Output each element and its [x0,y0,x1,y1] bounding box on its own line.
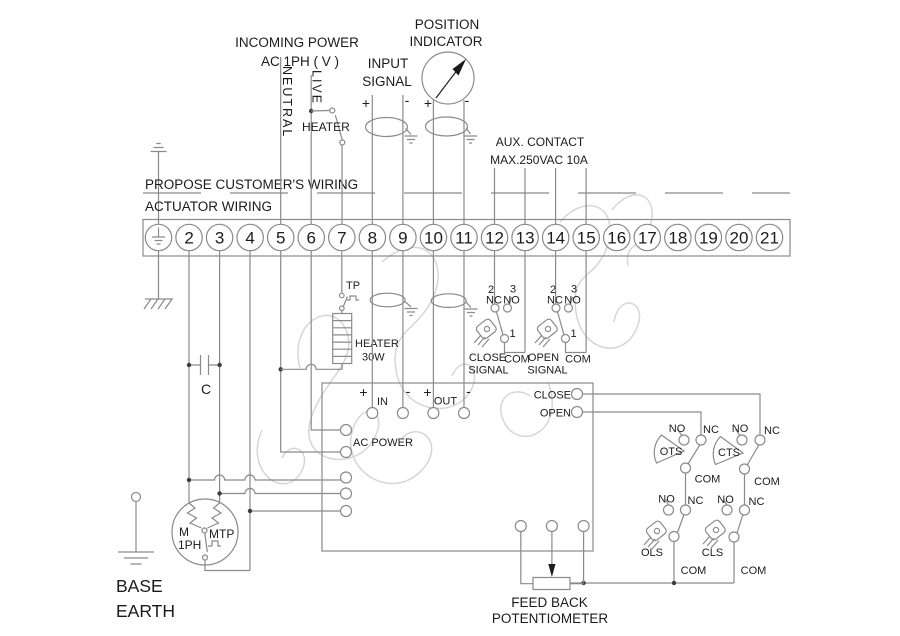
feedback-potentiometer [521,532,584,590]
label-aux-contact: AUX. CONTACT [496,135,585,149]
diagram-canvas: PROPOSE CUSTOMER'S WIRING ACTUATOR WIRIN… [0,0,900,636]
cts-no: NO [732,423,749,435]
terminal-number-3: 3 [215,229,224,248]
label-ac-power: AC POWER [353,437,413,449]
label-neutral: NEUTRAL [280,66,294,138]
ots-com: COM [695,474,721,486]
indicator-plus: + [424,95,432,111]
indicator-minus: - [465,92,470,108]
cts-nc: NC [764,425,780,437]
terminal-number-10: 10 [424,229,443,248]
aux-contact-wires [495,168,587,224]
label-heater-power: 30W [362,352,385,364]
input-plus: + [362,95,370,111]
earth-bottom-hatched [144,251,173,309]
cls-no: NO [717,494,734,506]
label-motor-m: M [179,525,189,539]
label-heater-switch: HEATER [302,120,350,134]
ols-nc: NC [688,495,704,507]
label-out: OUT [434,396,458,408]
label-heater: HEATER [355,338,399,350]
label-base: BASE [116,576,163,596]
out-minus: - [466,383,471,399]
terminal-number-7: 7 [337,229,346,248]
label-signal: SIGNAL [362,74,412,89]
terminal-earth [145,224,171,250]
cls-com: COM [741,565,767,577]
terminal-number-5: 5 [276,229,285,248]
close-com: COM [504,354,530,366]
terminal-number-16: 16 [607,229,626,248]
label-motor-phase: 1PH [178,538,201,552]
label-earth: EARTH [116,601,175,621]
ots-no: NO [669,423,686,435]
label-in: IN [377,396,388,408]
terminal-number-12: 12 [485,229,504,248]
input-minus: - [405,92,410,108]
wiring-diagram: PROPOSE CUSTOMER'S WIRING ACTUATOR WIRIN… [0,0,900,636]
open-contact-1: 1 [570,328,576,340]
terminal-number-11: 11 [455,229,473,248]
label-close-output: CLOSE [534,390,571,402]
label-motor-mtp: MTP [209,527,234,541]
label-ac-1ph: AC 1PH ( V ) [261,54,339,69]
label-feedback-2: POTENTIOMETER [492,611,609,626]
terminal-number-19: 19 [699,229,718,248]
input-signal-wires [366,95,418,224]
in-minus: - [406,383,411,399]
terminal-number-20: 20 [729,229,748,248]
open-com: COM [565,354,591,366]
out-plus: + [423,384,431,400]
ols-com: COM [681,565,707,577]
close-no: NO [503,295,520,307]
terminal-number-13: 13 [516,229,535,248]
label-open-output: OPEN [540,408,571,420]
cls-nc: NC [749,496,765,508]
open-nc: NC [547,295,563,307]
in-plus: + [359,384,367,400]
open-no: NO [564,295,581,307]
label-incoming-power: INCOMING POWER [235,35,359,50]
terminal-number-9: 9 [398,229,407,248]
label-live: LIVE [310,70,324,105]
label-ots: OTS [660,446,683,458]
label-close-signal-2: SIGNAL [468,365,508,377]
label-capacitor: C [201,381,211,397]
terminal-number-15: 15 [577,229,596,248]
label-position: POSITION [415,17,480,32]
terminal-number-4: 4 [245,229,254,248]
label-open-signal-1: OPEN [528,352,559,364]
ots-nc: NC [703,424,719,436]
terminal-strip: 23456789101112131415161718192021 [143,220,790,257]
label-tp: TP [346,280,360,292]
base-earth-symbol [118,493,154,565]
close-nc: NC [486,295,502,307]
label-actuator-wiring: ACTUATOR WIRING [145,199,272,214]
label-input: INPUT [368,56,409,71]
terminal-number-18: 18 [668,229,687,248]
label-feedback-1: FEED BACK [511,595,588,610]
terminal-number-6: 6 [307,229,316,248]
label-ols: OLS [641,547,663,559]
label-customer-wiring: PROPOSE CUSTOMER'S WIRING [145,177,358,192]
terminal-number-2: 2 [184,229,193,248]
terminal-number-14: 14 [546,229,565,248]
terminal-number-17: 17 [638,229,657,248]
label-indicator: INDICATOR [409,34,482,49]
label-cts: CTS [718,447,740,459]
terminal-number-8: 8 [368,229,377,248]
close-contact-1: 1 [509,328,515,340]
terminal-number-21: 21 [760,229,779,248]
label-cls: CLS [702,547,723,559]
label-open-signal-2: SIGNAL [527,365,567,377]
cts-com: COM [754,476,780,488]
position-indicator [422,52,477,224]
ols-no: NO [658,494,675,506]
label-close-signal-1: CLOSE [469,352,506,364]
label-aux-rating: MAX.250VAC 10A [490,153,588,167]
